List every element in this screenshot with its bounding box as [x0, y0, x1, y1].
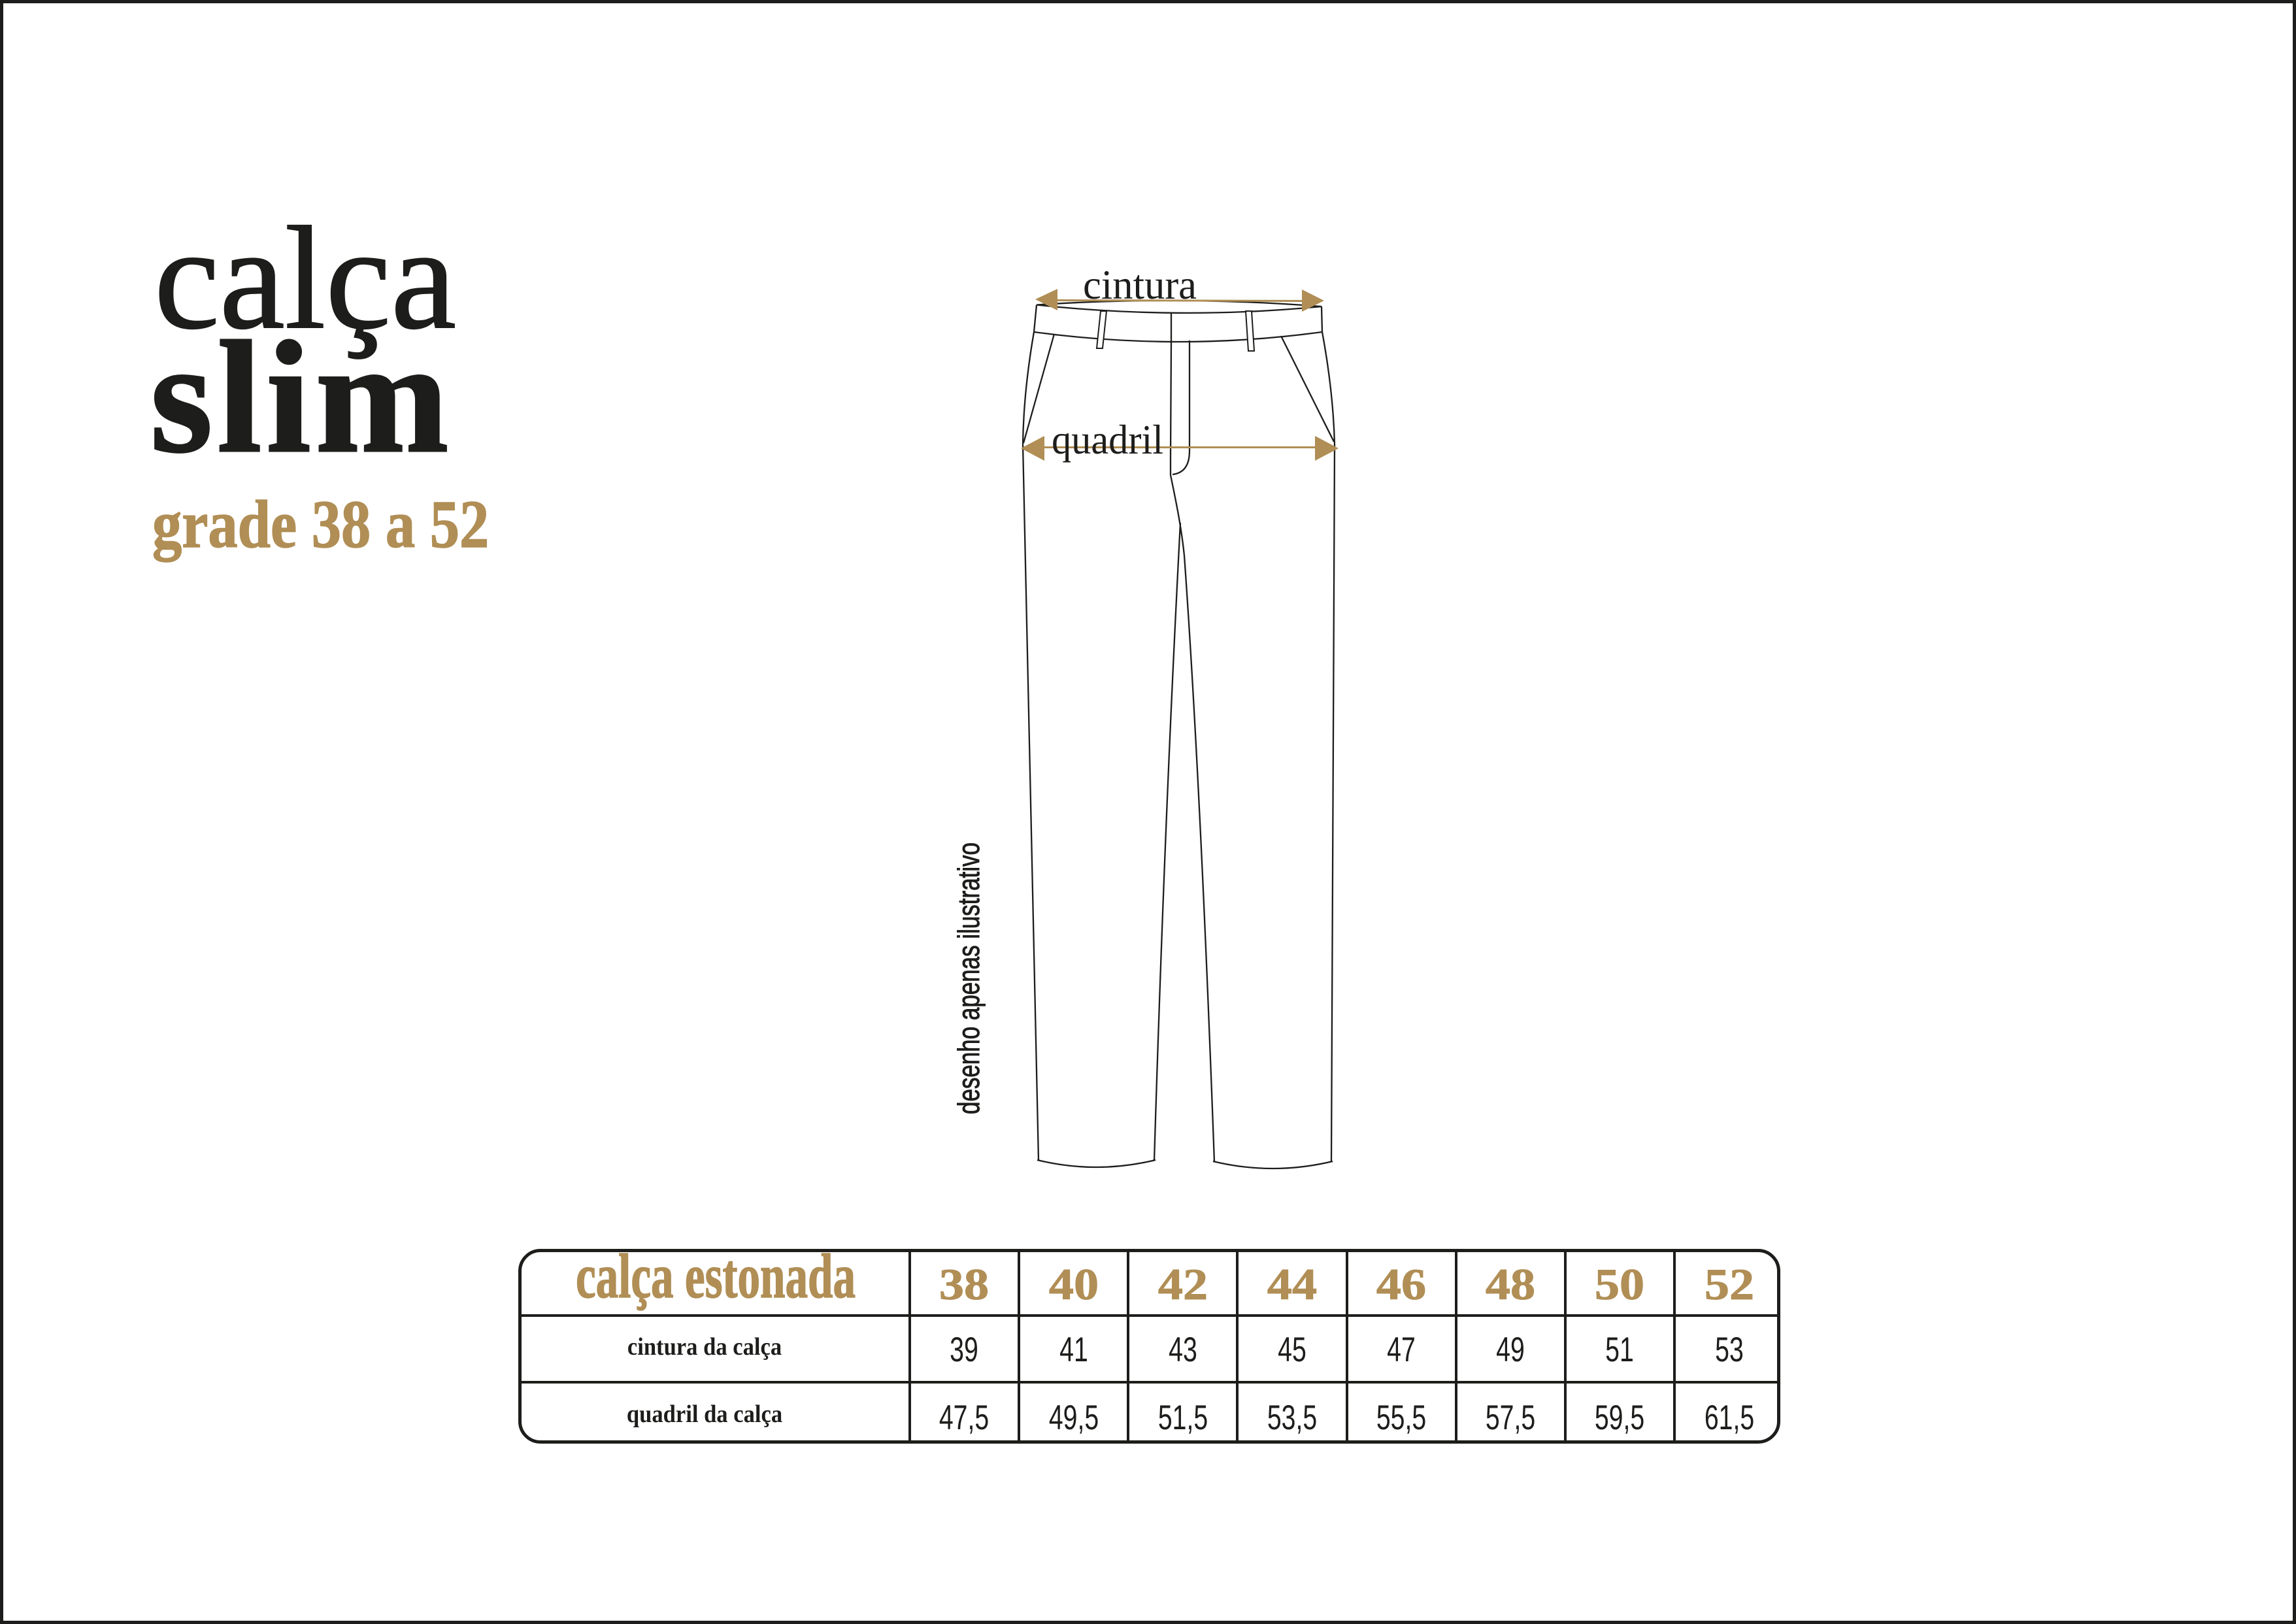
svg-text:quadril: quadril	[1052, 416, 1163, 463]
svg-text:cintura: cintura	[1083, 261, 1197, 308]
